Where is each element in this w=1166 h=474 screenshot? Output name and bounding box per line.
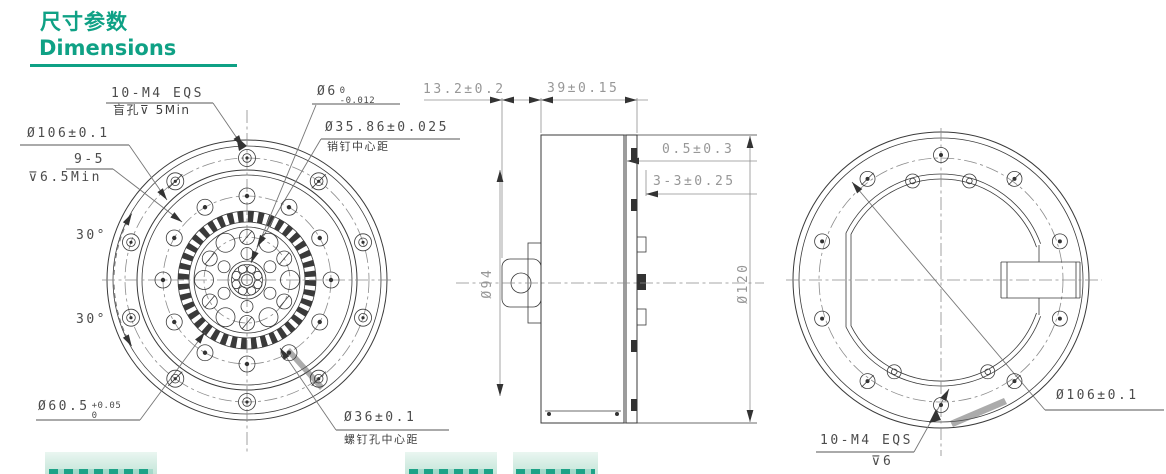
pin-hole-dia-value: Ø6: [317, 84, 338, 99]
front-flange-bolt-circle-label: Ø106±0.1: [27, 127, 110, 141]
highlight-patch-3: [513, 452, 598, 474]
side-body-dia-label: Ø94: [481, 248, 495, 318]
front-pin-hole-dia-label: Ø60-0.012: [317, 85, 375, 107]
front-bolt-spec-depth-label: 盲孔⊽ 5Min: [113, 104, 191, 117]
front-angle-bottom-label: 30°: [76, 313, 107, 327]
side-flange-dia-label: Ø120: [737, 248, 751, 318]
spigot-dia-value: Ø60.5: [38, 399, 90, 414]
dimensions-section: 尺寸参数 Dimensions: [0, 0, 1166, 474]
side-body-depth-label: 39±0.15: [547, 82, 619, 96]
side-front-depth-label: 13.2±0.2: [423, 83, 506, 97]
side-tab-width-label: 3-3±0.25: [653, 175, 736, 189]
front-bolt-spec-label: 10-M4 EQS: [111, 87, 204, 101]
front-pin-bolt-circle-label: Ø35.86±0.025: [325, 121, 449, 135]
front-screw-bolt-circle-label: Ø36±0.1: [344, 411, 416, 425]
spigot-tol-lower: 0: [92, 412, 122, 422]
rear-bolt-spec-label: 10-M4 EQS: [820, 434, 913, 448]
front-counterbore-label: 9-5: [74, 153, 105, 167]
side-gap-label: 0.5±0.3: [662, 143, 734, 157]
front-counterbore-depth-label: ⊽6.5Min: [28, 171, 102, 185]
highlight-patch-1: [45, 452, 157, 474]
front-angle-top-label: 30°: [76, 229, 107, 243]
highlight-patch-2: [405, 452, 497, 474]
engineering-drawing: [0, 0, 1166, 474]
rear-view-drawing: [786, 128, 1164, 456]
front-spigot-dia-label: Ø60.5+0.050: [38, 400, 121, 422]
front-pin-bolt-circle-note: 销钉中心距: [327, 141, 390, 153]
pin-hole-tol-lower: -0.012: [340, 97, 376, 107]
rear-bolt-depth-label: ⊽6: [871, 455, 893, 469]
front-screw-bolt-circle-note: 螺钉孔中心距: [344, 434, 419, 446]
rear-flange-bolt-circle-label: Ø106±0.1: [1056, 389, 1139, 403]
